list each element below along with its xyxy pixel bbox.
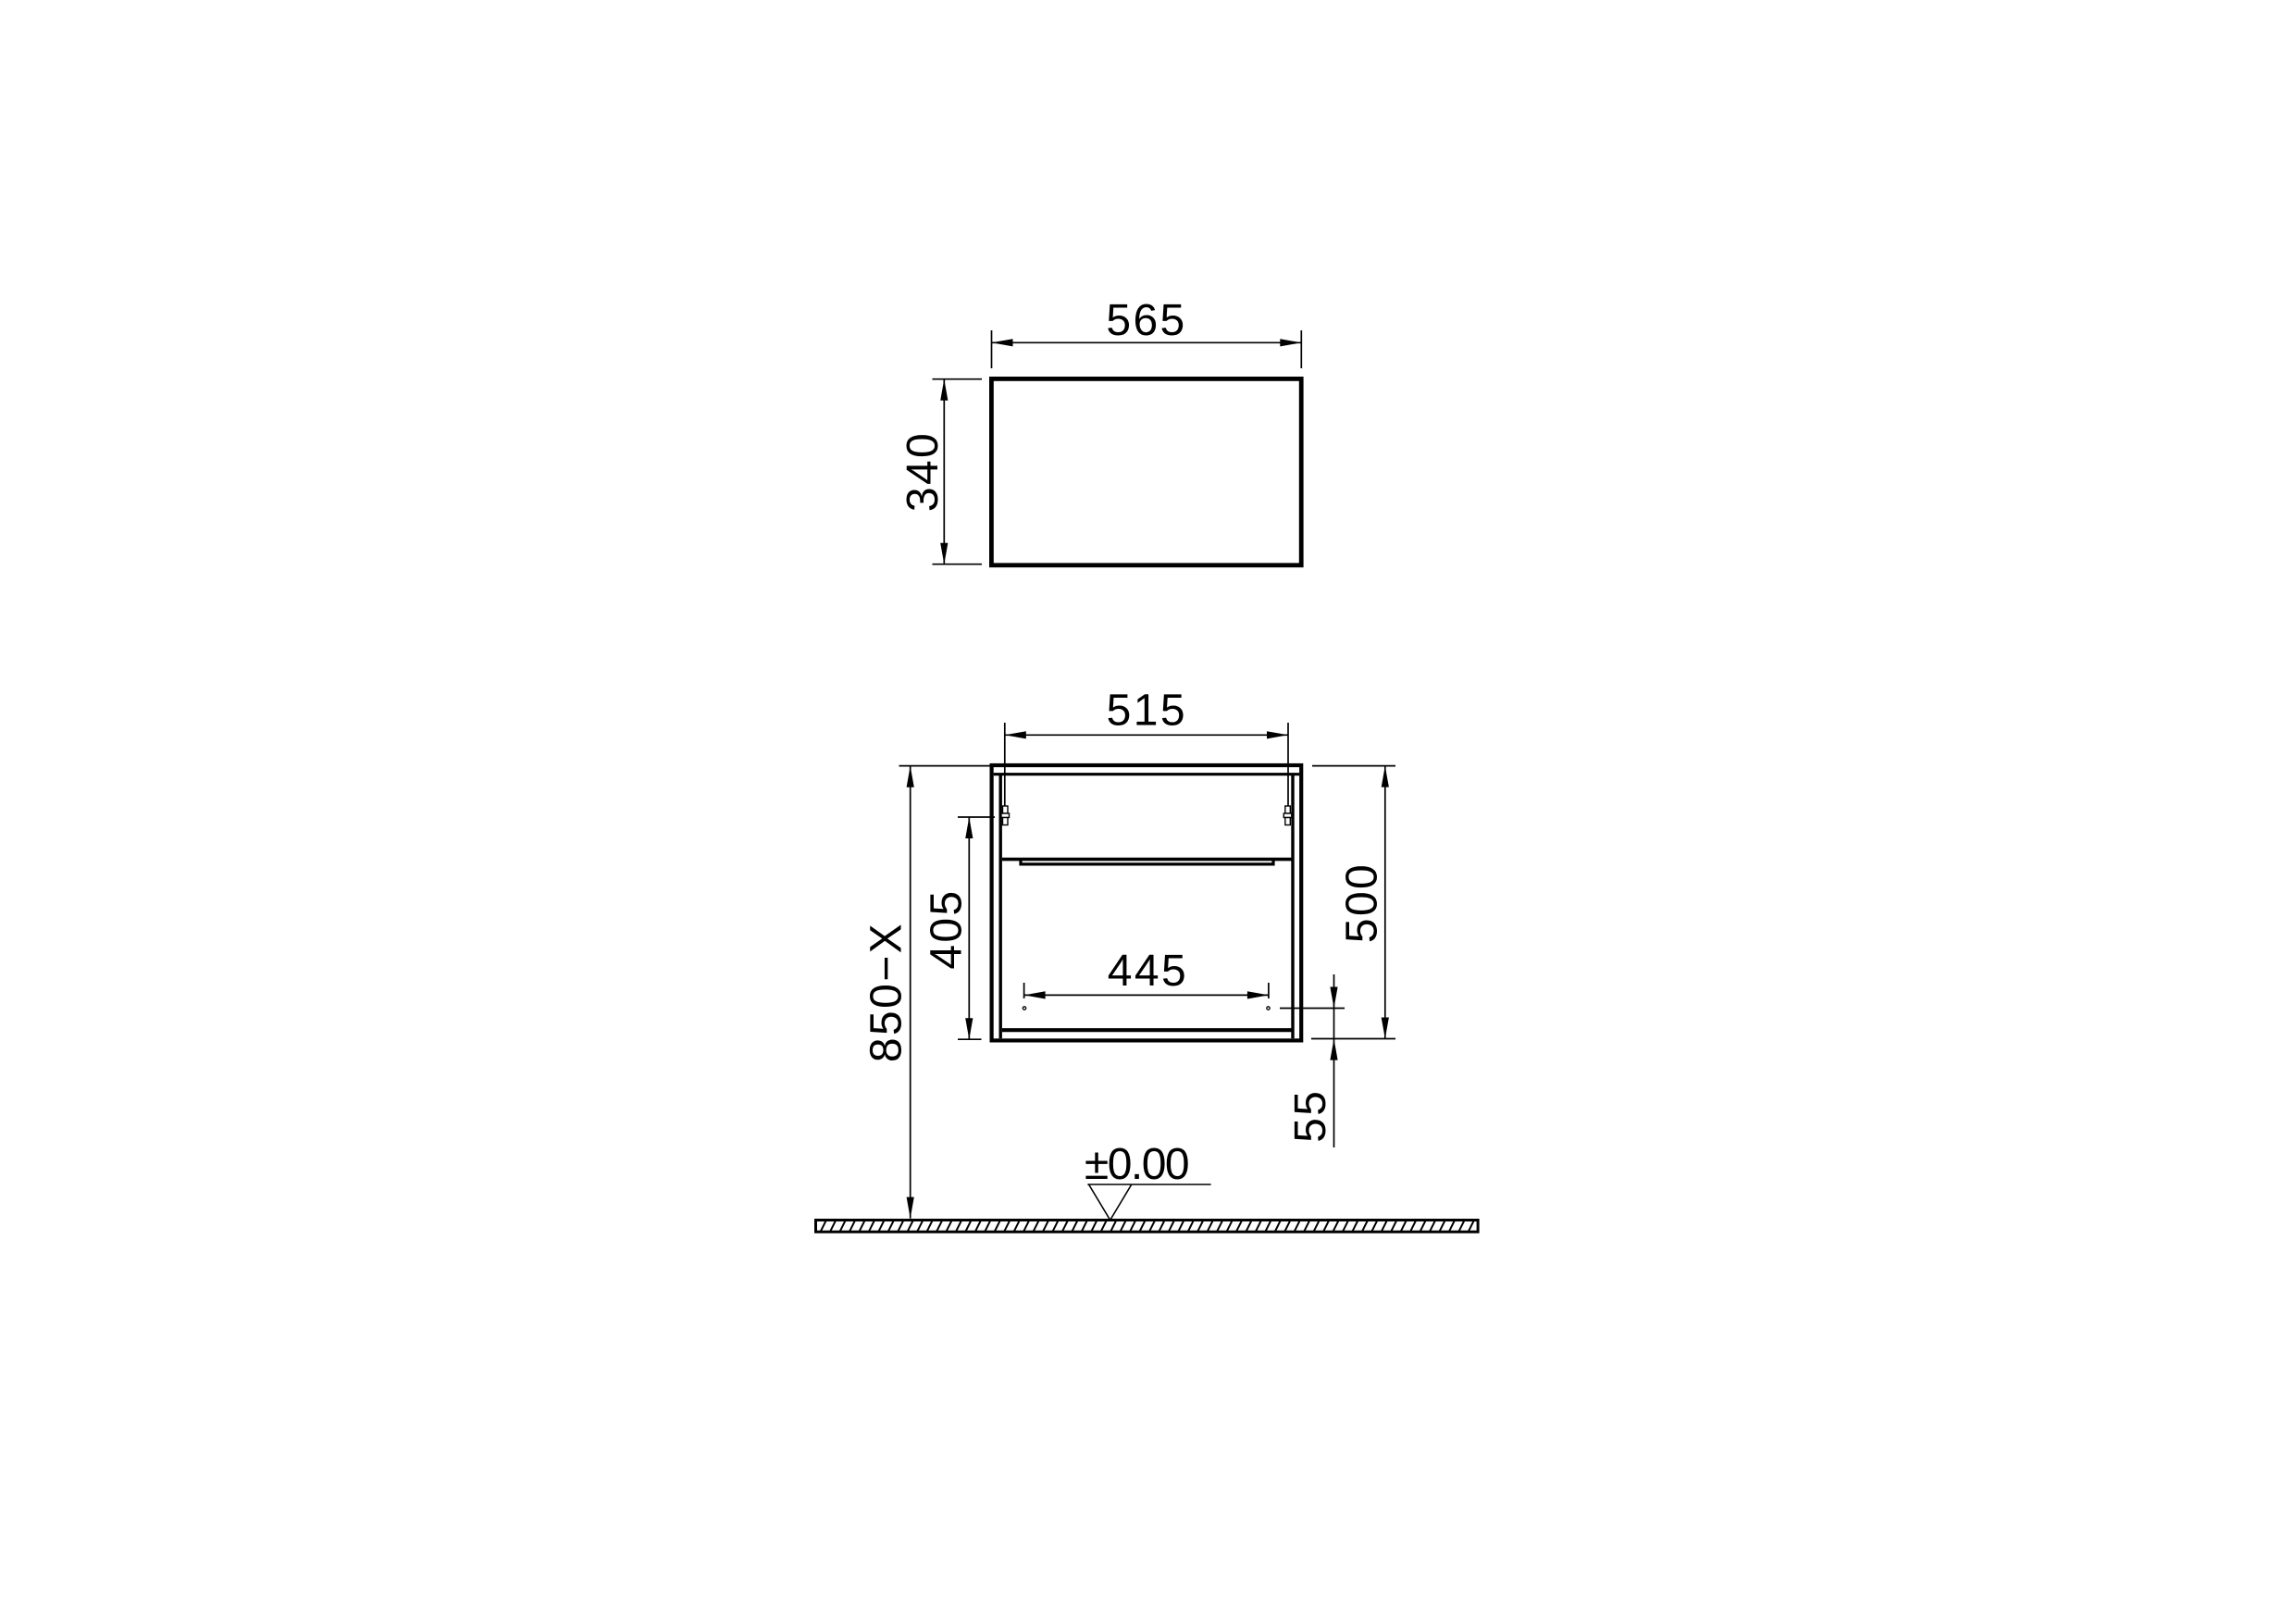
svg-text:±0.00: ±0.00 (1085, 1140, 1188, 1189)
svg-text:500: 500 (1337, 862, 1386, 943)
svg-text:445: 445 (1108, 947, 1188, 996)
svg-text:55: 55 (1286, 1089, 1335, 1143)
svg-text:340: 340 (899, 431, 948, 512)
svg-text:850−X: 850−X (862, 922, 911, 1062)
svg-text:565: 565 (1106, 296, 1186, 345)
svg-text:515: 515 (1107, 686, 1187, 735)
svg-text:405: 405 (922, 888, 971, 969)
